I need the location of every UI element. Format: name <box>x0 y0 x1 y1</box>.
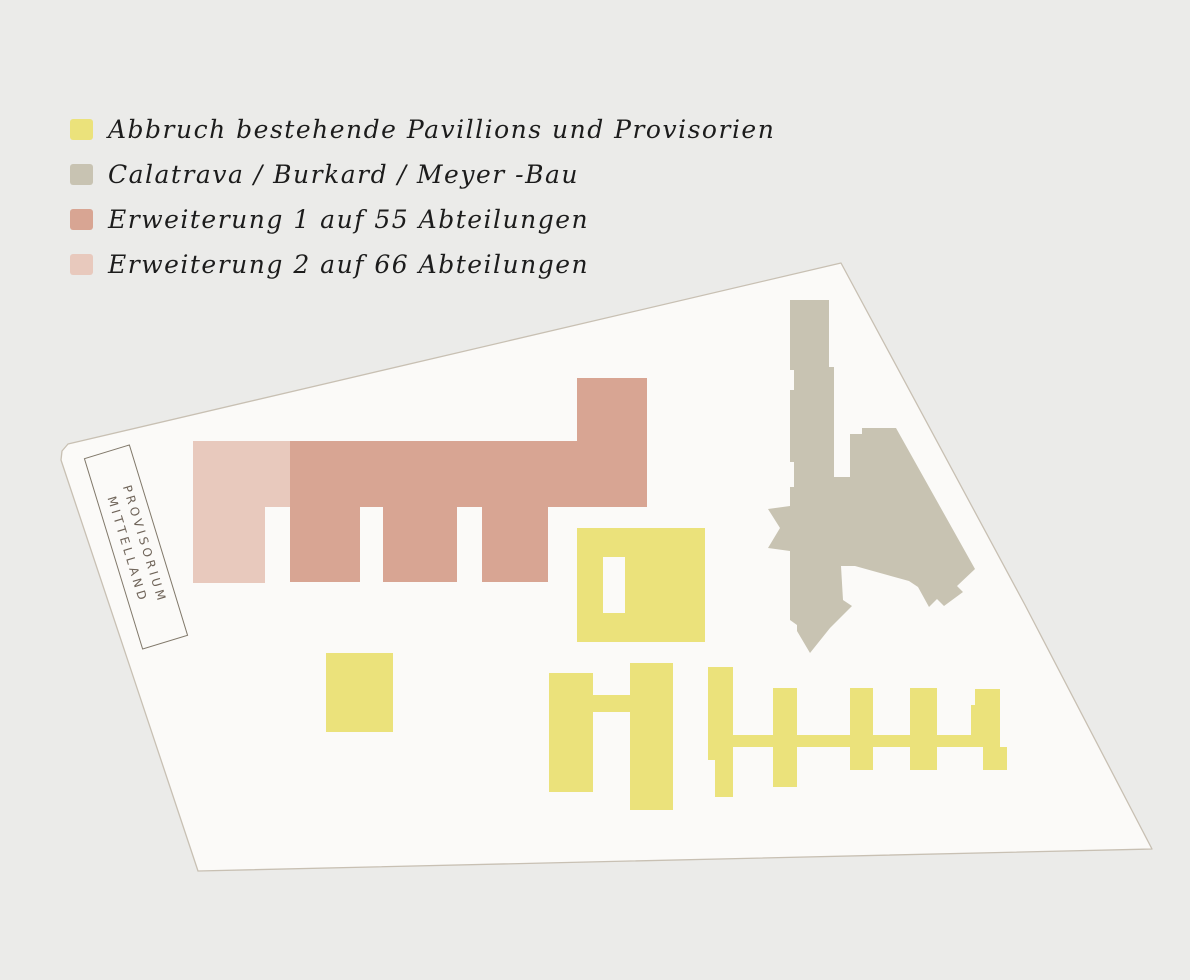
legend-row-abbruch: Abbruch bestehende Pavillions und Provis… <box>70 107 775 152</box>
building-abbruch-comb-tooth-d2 <box>983 747 1007 770</box>
map-canvas: PROVISORIUM MITTELLAND Abbruch bestehend… <box>0 0 1190 980</box>
legend-label-calatrava: Calatrava / Burkard / Meyer -Bau <box>108 160 579 189</box>
legend-swatch-erweiterung1 <box>70 209 93 230</box>
legend-row-calatrava: Calatrava / Burkard / Meyer -Bau <box>70 152 775 197</box>
building-abbruch-courtyard <box>577 528 705 642</box>
legend-row-erweiterung2: Erweiterung 2 auf 66 Abteilungen <box>70 242 775 287</box>
legend-label-erweiterung1: Erweiterung 1 auf 55 Abteilungen <box>108 205 589 234</box>
siteplan-page: { "legend": { "items": [ { "label": "Abb… <box>0 0 1190 980</box>
legend-label-erweiterung2: Erweiterung 2 auf 66 Abteilungen <box>108 250 589 279</box>
legend: Abbruch bestehende Pavillions und Provis… <box>70 107 775 287</box>
legend-swatch-calatrava <box>70 164 93 185</box>
building-abbruch-comb-tooth-c <box>910 688 937 770</box>
legend-label-abbruch: Abbruch bestehende Pavillions und Provis… <box>108 115 775 144</box>
building-abbruch-square <box>326 653 393 732</box>
building-abbruch-comb-tooth-d <box>971 689 1000 735</box>
building-abbruch-h-left <box>549 673 593 792</box>
legend-swatch-abbruch <box>70 119 93 140</box>
building-abbruch-comb-tooth-a <box>773 688 797 787</box>
legend-row-erweiterung1: Erweiterung 1 auf 55 Abteilungen <box>70 197 775 242</box>
building-abbruch-comb-tooth-b <box>850 688 873 770</box>
building-abbruch-h-bridge <box>593 695 630 712</box>
building-abbruch-h-right <box>630 663 673 810</box>
legend-swatch-erweiterung2 <box>70 254 93 275</box>
